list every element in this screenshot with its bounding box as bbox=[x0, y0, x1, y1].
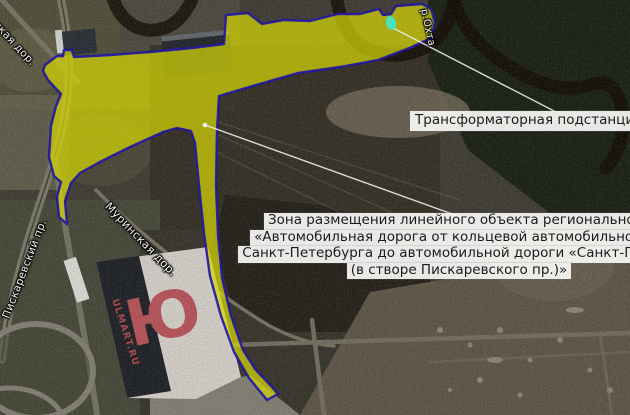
zone-anchor-dot bbox=[203, 123, 208, 128]
map-canvas[interactable]: Ю ULMART.RU Муринская дор. Муринская дор… bbox=[0, 0, 630, 415]
zone-description-block: Зона размещения линейного объекта регион… bbox=[233, 213, 630, 279]
transformer-substation-label: Трансформаторная подстанция bbox=[410, 111, 630, 131]
satellite-imagery: Ю ULMART.RU bbox=[0, 0, 630, 415]
zone-description-line: «Автомобильная дорога от кольцевой автом… bbox=[250, 230, 630, 247]
zone-description-line: Зона размещения линейного объекта регион… bbox=[264, 213, 630, 230]
noise-light bbox=[0, 0, 630, 415]
zone-description-line: (в створе Пискаревского пр.)» bbox=[347, 263, 571, 280]
zone-description-line: Санкт-Петербурга до автомобильной дороги… bbox=[238, 246, 630, 263]
